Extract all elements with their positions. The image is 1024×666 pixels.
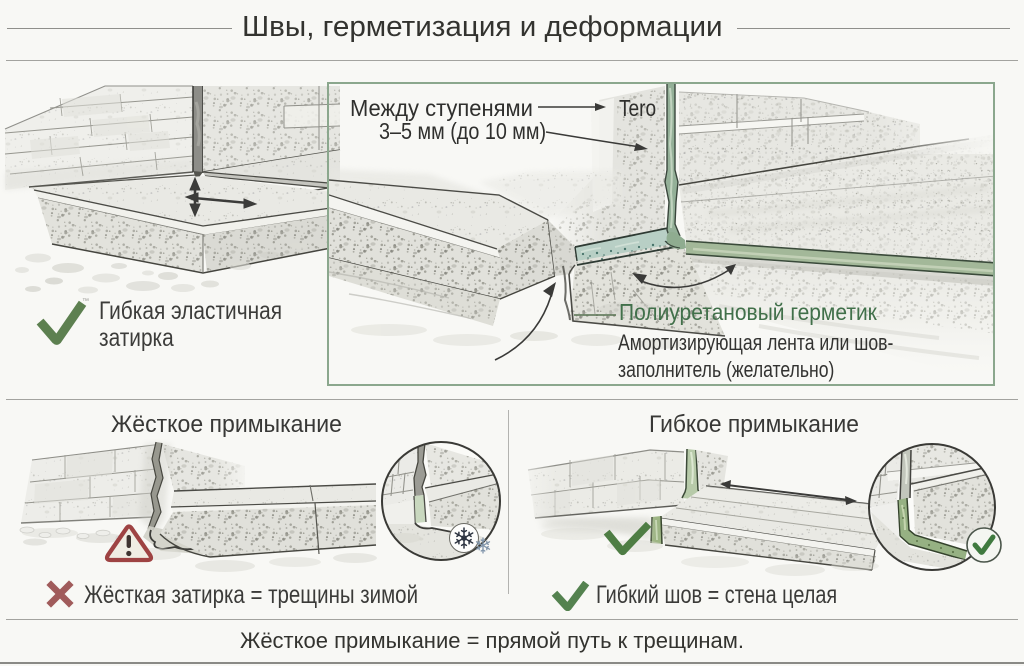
svg-text:™: ™ (82, 298, 89, 305)
